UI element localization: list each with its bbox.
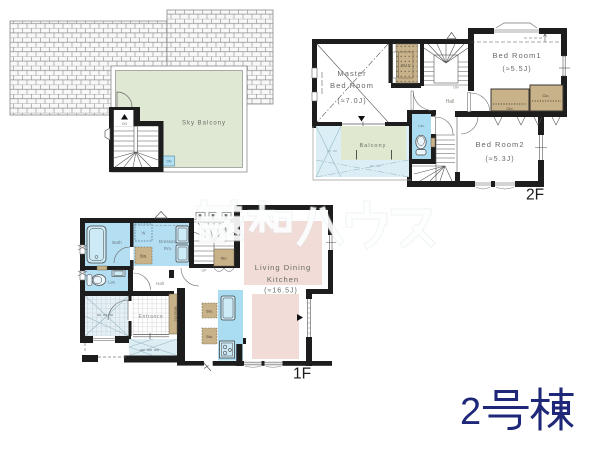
- svg-text:Bed Room: Bed Room: [330, 81, 374, 90]
- svg-text:Hall: Hall: [156, 281, 164, 286]
- svg-text:Clo.: Clo.: [506, 106, 513, 111]
- svg-text:Shoes Clo.: Shoes Clo.: [174, 306, 178, 322]
- svg-text:Bath: Bath: [112, 240, 122, 245]
- svg-text:Bed Room1: Bed Room1: [492, 51, 541, 60]
- svg-text:(≈5.3J): (≈5.3J): [485, 154, 514, 163]
- svg-text:Bed Room2: Bed Room2: [475, 140, 524, 149]
- svg-text:Sky Balcony: Sky Balcony: [182, 121, 226, 127]
- svg-text:Clo.: Clo.: [542, 93, 549, 98]
- svg-text:DN: DN: [122, 122, 127, 126]
- svg-text:(≈7.0J): (≈7.0J): [337, 96, 366, 105]
- svg-text:2F: 2F: [526, 187, 544, 204]
- svg-text:Entrance: Entrance: [139, 314, 164, 320]
- svg-text:Rm.: Rm.: [164, 246, 172, 251]
- svg-text:2: 2: [460, 391, 481, 433]
- svg-text:1F: 1F: [293, 366, 311, 383]
- svg-text:Sto.: Sto.: [206, 309, 213, 314]
- svg-text:W.I.C.: W.I.C.: [401, 63, 412, 68]
- svg-text:Sto.: Sto.: [140, 254, 147, 259]
- svg-text:Living Dining: Living Dining: [255, 263, 311, 272]
- svg-text:Sto.: Sto.: [206, 334, 213, 339]
- svg-text:Kitchen: Kitchen: [267, 275, 299, 284]
- svg-text:(≈16.5J): (≈16.5J): [264, 288, 298, 295]
- svg-text:UP: UP: [202, 269, 208, 273]
- svg-text:Sto.: Sto.: [220, 256, 227, 261]
- svg-text:Hall: Hall: [446, 99, 455, 105]
- svg-text:Lav.: Lav.: [108, 280, 116, 285]
- svg-text:Dressing: Dressing: [159, 239, 178, 244]
- svg-text:Lav.: Lav.: [418, 123, 425, 128]
- svg-text:W: W: [142, 231, 146, 236]
- svg-text:(≈5.5J): (≈5.5J): [502, 64, 531, 73]
- svg-text:DN: DN: [167, 160, 172, 164]
- svg-text:Balcony: Balcony: [360, 143, 387, 149]
- svg-text:DN: DN: [453, 86, 459, 90]
- svg-text:Master: Master: [337, 69, 366, 78]
